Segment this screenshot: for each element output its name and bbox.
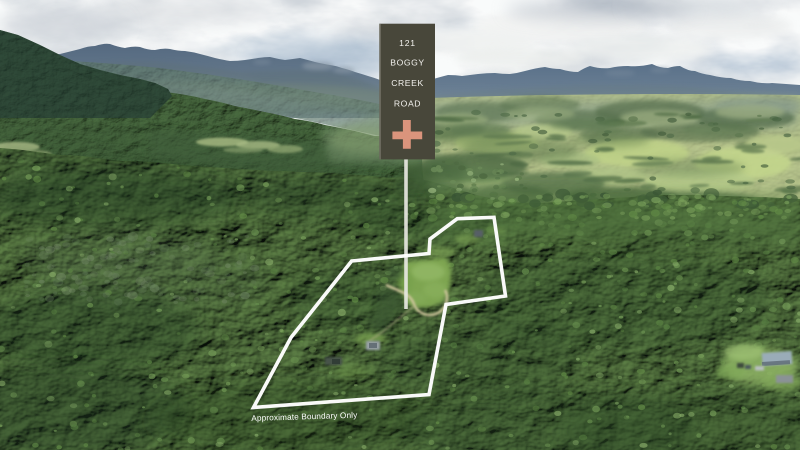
svg-text:ROAD: ROAD — [394, 98, 421, 108]
svg-text:CREEK: CREEK — [391, 78, 424, 88]
svg-text:BOGGY: BOGGY — [390, 57, 425, 67]
svg-text:121: 121 — [399, 38, 416, 48]
